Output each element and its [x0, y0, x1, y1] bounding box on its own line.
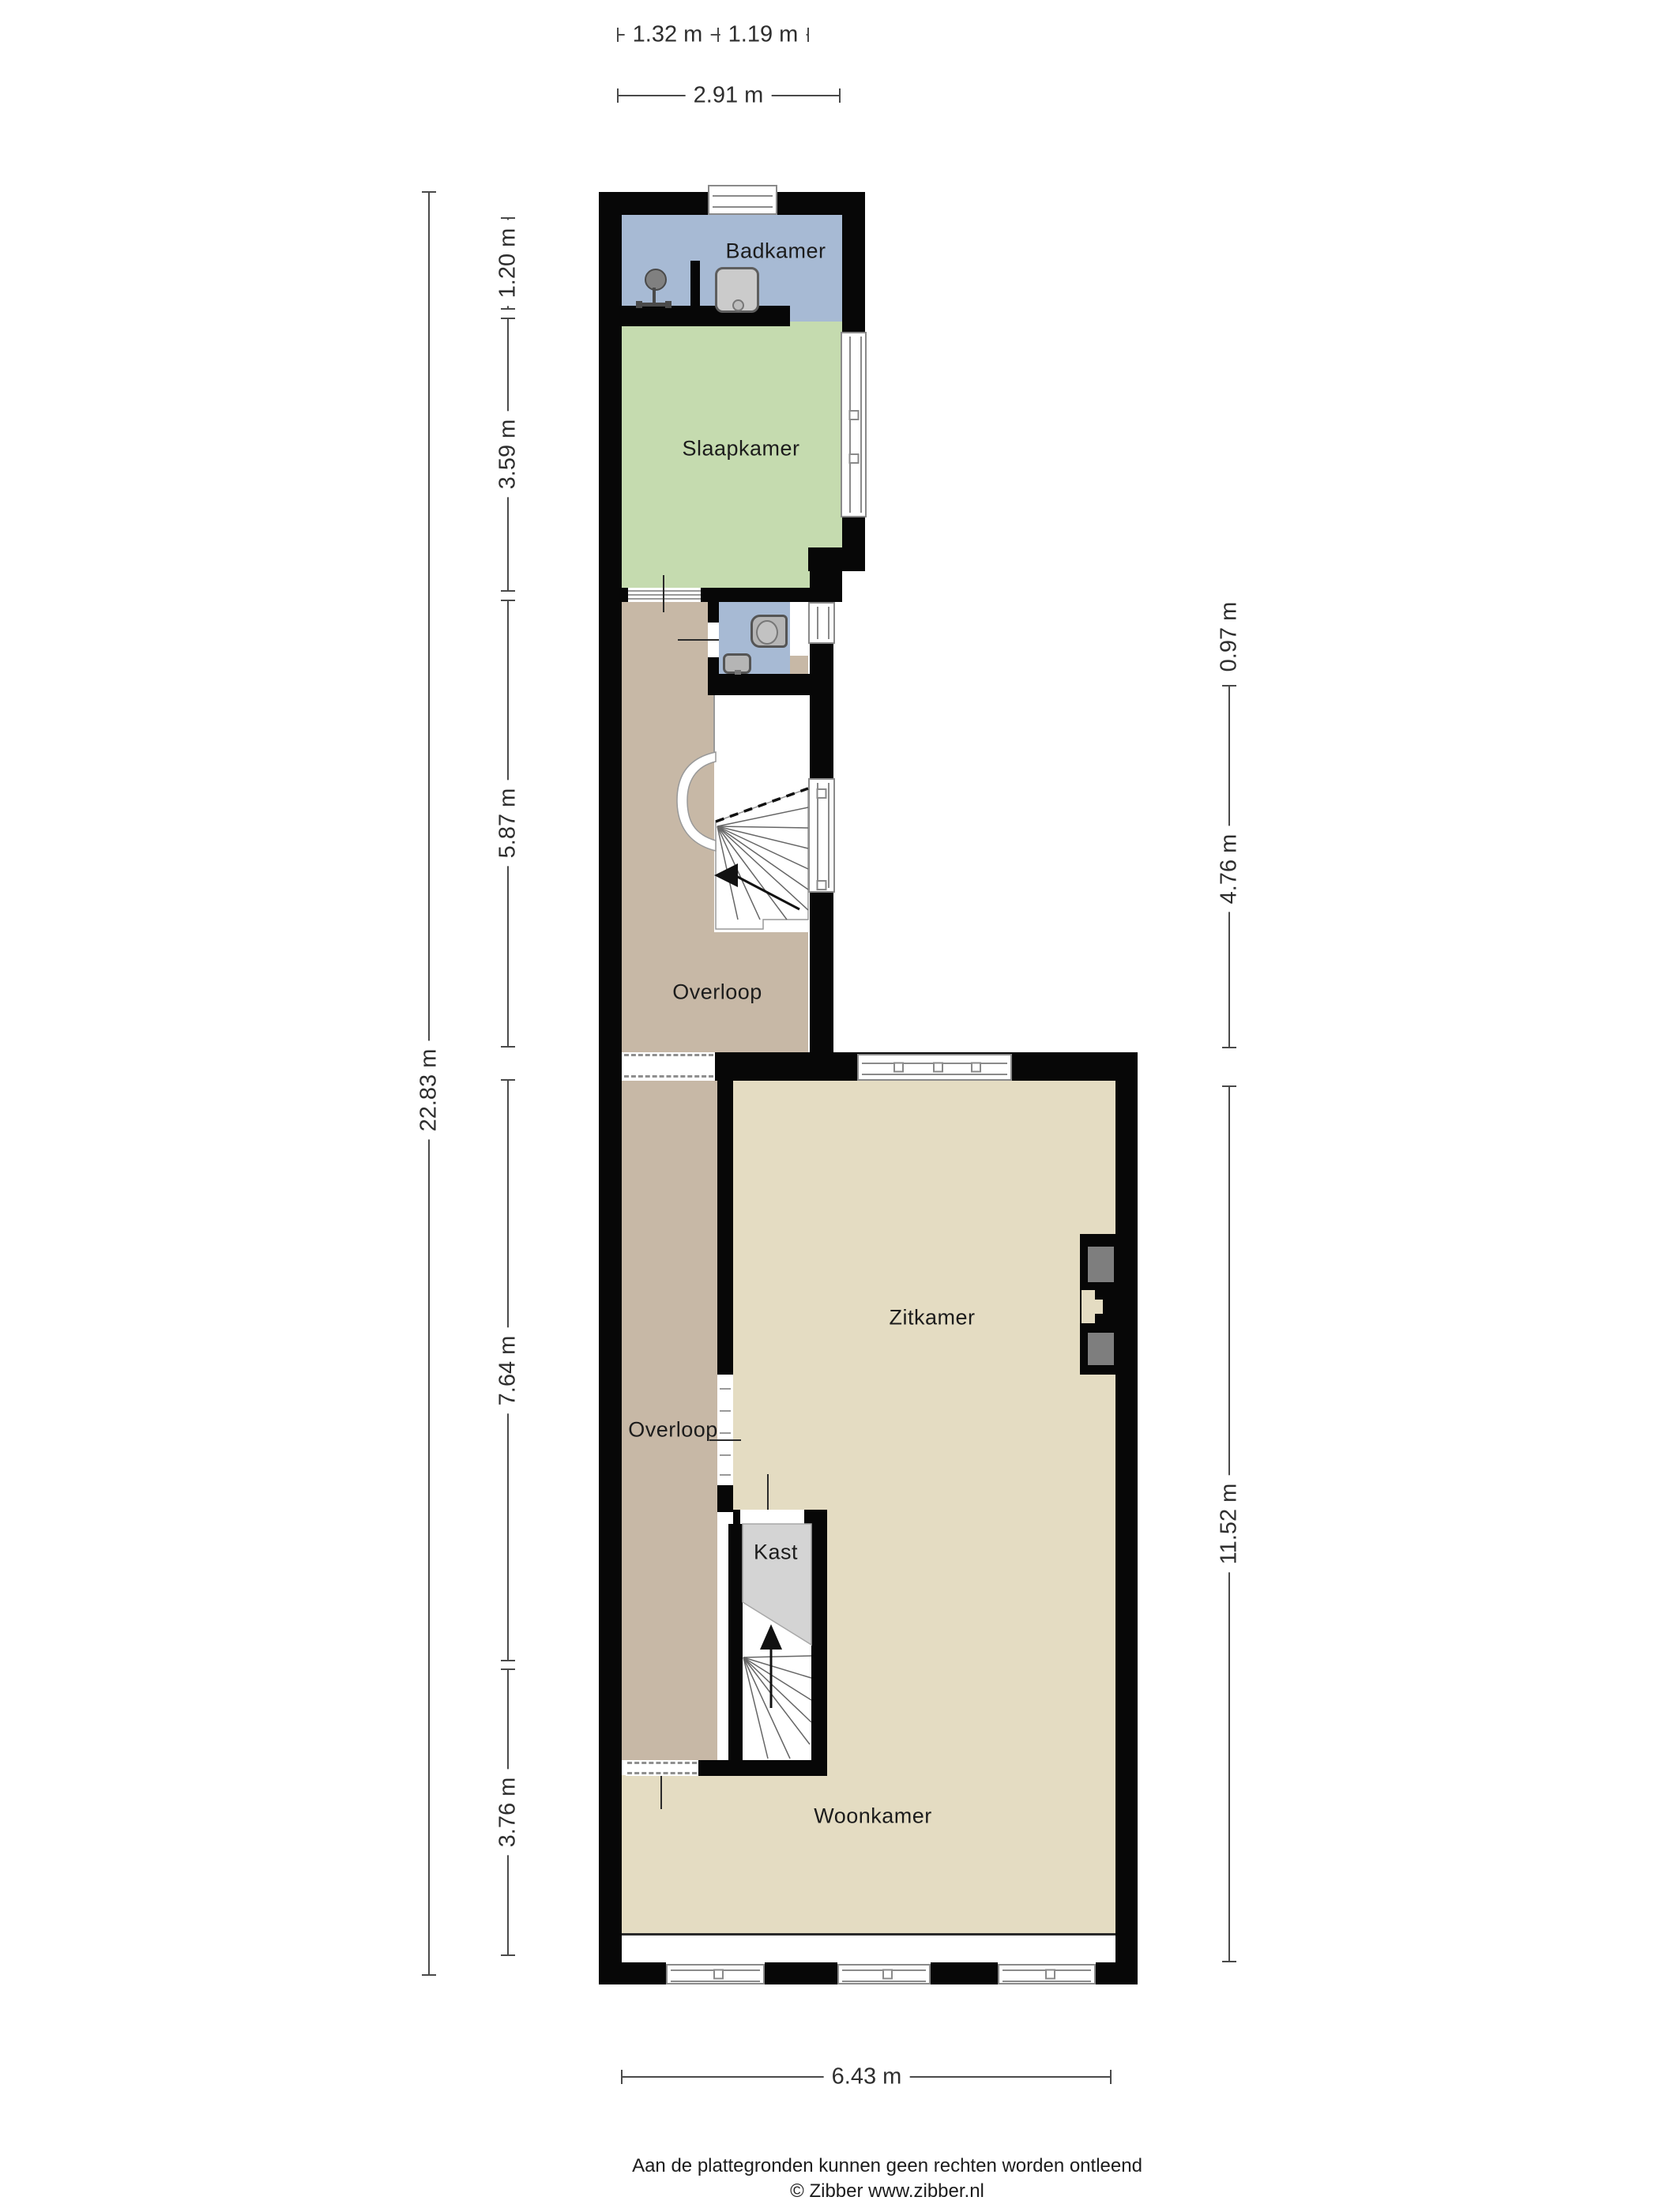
wall-shower-partition [690, 261, 700, 316]
washbasin-icon [636, 267, 671, 314]
door-swing-overloop2 [660, 1776, 662, 1809]
opening-dash [627, 1762, 697, 1764]
fireplace-hearth [1082, 1290, 1095, 1323]
bay-strip [622, 1935, 1115, 1962]
dim-label-top-1: 1.32 m [625, 20, 711, 51]
dim-label-left-3: 5.87 m [493, 781, 524, 867]
wall-bottom-seg1 [599, 1962, 666, 1984]
room-label-overloop1: Overloop [672, 980, 762, 1005]
wall-right-lower [1115, 1052, 1138, 1984]
dim-label-left-2: 3.59 m [493, 412, 524, 498]
room-label-overloop2: Overloop [628, 1418, 718, 1443]
window-mullion [882, 1969, 893, 1980]
door-swing-wc [678, 639, 719, 641]
wall-bottom-seg4 [1096, 1962, 1138, 1984]
window-woonkamer-2 [837, 1964, 931, 1984]
fireplace-niche-top [1088, 1247, 1114, 1282]
window-mullion [1045, 1969, 1055, 1980]
wall-kast-right [811, 1524, 827, 1760]
stairs-lower-treads [743, 1656, 811, 1759]
dim-label-bottom-total: 6.43 m [824, 2062, 910, 2093]
window-mullion [817, 880, 827, 890]
stairs-direction-arrow [760, 1624, 782, 1650]
window-mullion [933, 1063, 943, 1073]
wall-slaapkamer-bottom-r [701, 588, 842, 602]
dim-label-top-total: 2.91 m [686, 81, 772, 111]
dim-label-right-total: 11.52 m [1214, 1476, 1245, 1573]
fireplace-niche-bottom [1088, 1333, 1114, 1365]
toilet-icon [750, 615, 788, 648]
window-zitkamer [857, 1054, 1012, 1081]
door-swing-kast [767, 1474, 769, 1510]
door-zitkamer [717, 1375, 733, 1485]
footer-disclaimer: Aan de plattegronden kunnen geen rechten… [632, 2155, 1142, 2177]
window-woonkamer-1 [666, 1964, 765, 1984]
dim-label-left-4: 7.64 m [493, 1328, 524, 1414]
window-top [708, 185, 777, 215]
dim-label-left-1: 1.20 m [493, 220, 524, 307]
room-label-woonkamer: Woonkamer [814, 1804, 932, 1829]
window-mullion [971, 1063, 981, 1073]
floorplan-canvas: Badkamer Slaapkamer Overloop Zitkamer Ov… [0, 0, 1659, 2212]
window-woonkamer-3 [998, 1964, 1096, 1984]
room-woonkamer-floor [622, 1775, 1115, 1933]
dim-label-top-2: 1.19 m [720, 20, 807, 51]
window-mullion [848, 453, 859, 464]
room-label-kast: Kast [754, 1540, 798, 1565]
dim-label-right-1: 0.97 m [1214, 594, 1245, 680]
window-slaapkamer [841, 332, 867, 517]
wall-corner-filler [833, 547, 842, 588]
room-label-slaapkamer: Slaapkamer [682, 437, 799, 461]
stairs-curved-wall [677, 752, 716, 851]
stairs-upper-tread-area [716, 788, 808, 929]
window-glass [713, 195, 773, 208]
window-mullion [848, 410, 859, 420]
wall-bottom-seg2 [765, 1962, 837, 1984]
stairs-upper [671, 678, 814, 939]
dim-label-right-2: 4.76 m [1214, 826, 1245, 912]
window-mullion [893, 1063, 904, 1073]
window-wc [808, 602, 835, 644]
window-mullion [817, 788, 827, 799]
room-label-zitkamer: Zitkamer [889, 1306, 975, 1330]
opening-dash [627, 1772, 697, 1774]
dim-label-left-5: 3.76 m [493, 1770, 524, 1856]
wall-bottom-seg3 [931, 1962, 998, 1984]
sink-icon [723, 653, 751, 674]
wall-zitkamer-left-b [717, 1485, 733, 1512]
fireplace-hearth-tab [1095, 1300, 1103, 1314]
wall-left-outer [599, 192, 622, 1984]
wall-zitkamer-left-a [717, 1081, 733, 1375]
window-mullion [713, 1969, 724, 1980]
footer-copyright: © Zibber www.zibber.nl [790, 2180, 984, 2203]
wc-duct [790, 602, 810, 656]
opening-dash [624, 1075, 713, 1078]
wall-slaapkamer-bottom-l [622, 588, 628, 602]
window-glass [817, 607, 829, 639]
shower-tray-icon [715, 267, 759, 313]
opening-dash [624, 1054, 713, 1056]
door-slaapkamer [628, 588, 701, 602]
door-swing-slaapkamer [663, 575, 664, 612]
wall-wc-left-a [708, 602, 719, 623]
dim-label-left-total: 22.83 m [414, 1041, 445, 1140]
window-glass [849, 337, 862, 513]
room-label-badkamer: Badkamer [725, 239, 826, 264]
